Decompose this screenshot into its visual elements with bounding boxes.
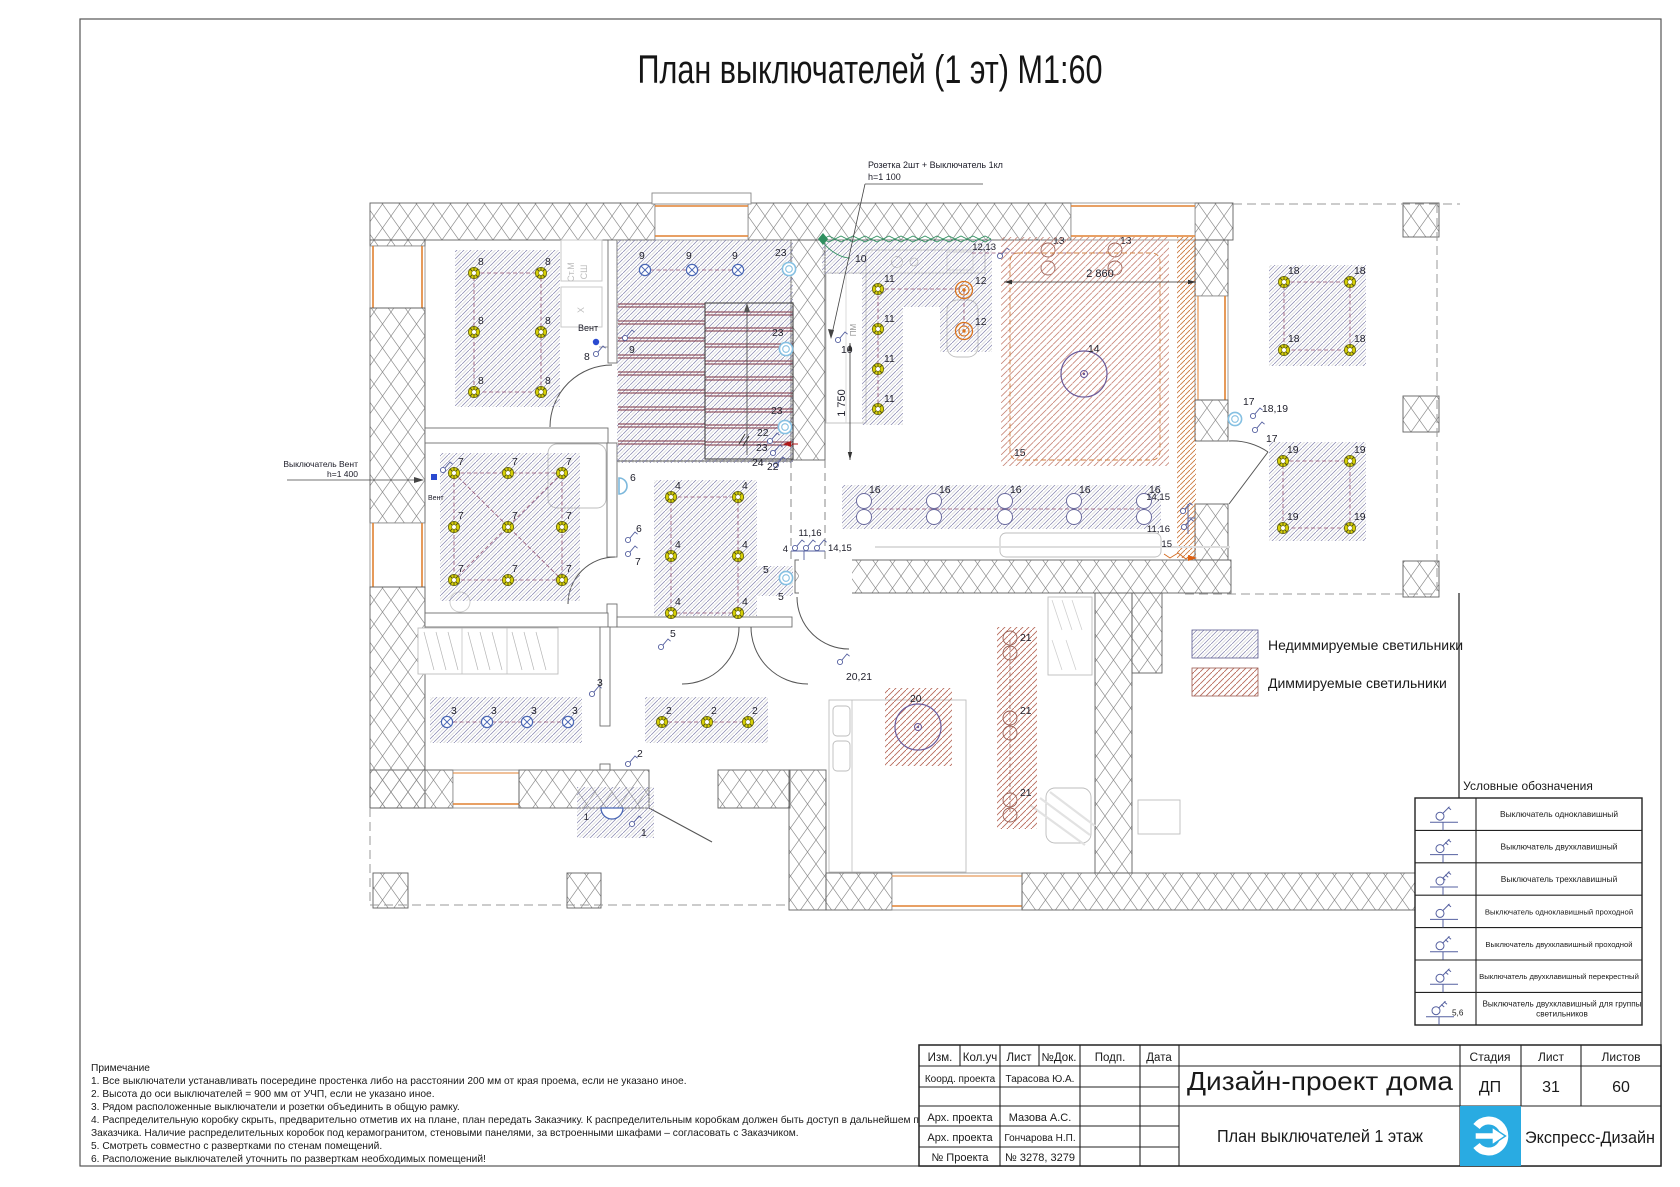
svg-text:Мазова А.С.: Мазова А.С. [1009, 1112, 1072, 1124]
svg-text:Вент: Вент [578, 323, 598, 333]
svg-text:7: 7 [458, 511, 464, 522]
svg-text:24: 24 [752, 458, 764, 469]
svg-text:Лист: Лист [1007, 1052, 1033, 1064]
svg-text:18,19: 18,19 [1262, 404, 1288, 415]
svg-text:14,15: 14,15 [1146, 492, 1170, 503]
svg-text:8: 8 [584, 352, 590, 363]
svg-text:9: 9 [732, 251, 738, 262]
svg-text:Диммируемые светильники: Диммируемые светильники [1268, 675, 1447, 691]
svg-text:11: 11 [884, 274, 895, 285]
svg-text:15: 15 [1014, 448, 1026, 459]
svg-text:9: 9 [629, 345, 635, 356]
svg-text:3: 3 [491, 706, 497, 717]
svg-text:20,21: 20,21 [846, 672, 872, 683]
svg-text:15: 15 [1161, 539, 1172, 550]
svg-text:17: 17 [1266, 434, 1278, 445]
svg-text:8: 8 [545, 257, 551, 268]
svg-text:2. Высота до оси выключателей: 2. Высота до оси выключателей = 900 мм о… [91, 1089, 435, 1100]
svg-text:7: 7 [458, 457, 464, 468]
svg-text:Х: Х [576, 307, 586, 313]
svg-text:10: 10 [855, 254, 867, 265]
svg-text:4: 4 [742, 540, 748, 551]
svg-text:Выключатель двухклавишный пере: Выключатель двухклавишный перекрестный [1479, 972, 1639, 981]
svg-text:8: 8 [478, 257, 484, 268]
svg-text:2: 2 [637, 749, 643, 760]
svg-text:12: 12 [975, 317, 987, 328]
svg-text:4: 4 [742, 597, 748, 608]
svg-text:Розетка 2шт + Выключатель 1кл: Розетка 2шт + Выключатель 1кл [868, 160, 1003, 170]
svg-text:Тарасова Ю.А.: Тарасова Ю.А. [1006, 1074, 1075, 1085]
svg-text:12: 12 [975, 276, 987, 287]
svg-text:4: 4 [783, 544, 788, 555]
svg-text:9: 9 [686, 251, 692, 262]
svg-text:3: 3 [451, 706, 457, 717]
svg-text:Гончарова Н.П.: Гончарова Н.П. [1004, 1133, 1075, 1144]
svg-text:31: 31 [1542, 1079, 1560, 1096]
svg-text:6: 6 [636, 524, 642, 535]
svg-text:4: 4 [675, 540, 681, 551]
svg-text:№ Проекта: № Проекта [931, 1152, 989, 1164]
svg-text:1: 1 [641, 828, 647, 839]
svg-text:1 750: 1 750 [836, 389, 848, 417]
svg-text:Вент: Вент [428, 495, 444, 502]
svg-text:2 860: 2 860 [1086, 268, 1114, 280]
svg-text:5. Смотреть совместно с развер: 5. Смотреть совместно с развертками по с… [91, 1141, 382, 1152]
svg-text:3: 3 [597, 678, 603, 689]
svg-text:7: 7 [512, 511, 518, 522]
svg-text:11: 11 [884, 394, 895, 405]
svg-text:7: 7 [566, 564, 572, 575]
svg-text:СШ: СШ [579, 265, 589, 280]
svg-text:Лист: Лист [1538, 1050, 1565, 1064]
svg-text:Выключатель одноклавишный: Выключатель одноклавишный [1500, 809, 1618, 819]
svg-text:19: 19 [1354, 512, 1366, 523]
svg-text:8: 8 [478, 376, 484, 387]
svg-text:Условные обозначения: Условные обозначения [1463, 779, 1593, 793]
svg-text:11,16: 11,16 [1147, 524, 1170, 535]
svg-text:Подп.: Подп. [1095, 1052, 1126, 1064]
svg-text:18: 18 [1354, 266, 1366, 277]
svg-text:Стадия: Стадия [1470, 1050, 1511, 1064]
svg-text:Коорд. проекта: Коорд. проекта [925, 1074, 996, 1085]
svg-text:Недиммируемые светильники: Недиммируемые светильники [1268, 637, 1463, 653]
svg-text:Листов: Листов [1602, 1050, 1641, 1064]
svg-text:5: 5 [763, 565, 769, 576]
svg-text:7: 7 [566, 511, 572, 522]
svg-text:18: 18 [1288, 334, 1300, 345]
svg-text:3: 3 [531, 706, 537, 717]
svg-text:Выключатель Вент: Выключатель Вент [283, 459, 358, 469]
svg-text:7: 7 [566, 457, 572, 468]
svg-text:1. Все выключатели устанавлива: 1. Все выключатели устанавливать посеред… [91, 1075, 687, 1087]
svg-text:светильников: светильников [1536, 1010, 1588, 1019]
svg-text:60: 60 [1612, 1079, 1630, 1096]
svg-text:3: 3 [572, 706, 578, 717]
svg-text:18: 18 [1288, 266, 1300, 277]
svg-text:14,15: 14,15 [828, 543, 852, 554]
svg-text:Ст.М: Ст.М [566, 262, 576, 282]
svg-text:23: 23 [772, 328, 784, 339]
svg-text:17: 17 [1243, 397, 1255, 408]
svg-text:16: 16 [1079, 485, 1091, 496]
svg-text:19: 19 [1287, 445, 1299, 456]
svg-text:8: 8 [545, 316, 551, 327]
svg-text:16: 16 [939, 485, 951, 496]
svg-text:16: 16 [869, 485, 881, 496]
svg-text:8: 8 [478, 316, 484, 327]
svg-text:Выключатель двухклавишный: Выключатель двухклавишный [1501, 842, 1618, 852]
svg-text:7: 7 [512, 457, 518, 468]
svg-text:Выключатель двухклавишный для: Выключатель двухклавишный для группы [1482, 1000, 1641, 1009]
svg-text:5: 5 [670, 629, 676, 640]
svg-text:3. Рядом расположенные выключа: 3. Рядом расположенные выключатели и роз… [91, 1101, 460, 1113]
svg-text:19: 19 [1287, 512, 1299, 523]
svg-text:2: 2 [711, 706, 717, 717]
svg-text:21: 21 [1020, 706, 1032, 717]
svg-text:22: 22 [757, 428, 769, 439]
svg-text:23: 23 [756, 443, 768, 454]
svg-text:План выключателей 1 этаж: План выключателей 1 этаж [1217, 1126, 1423, 1146]
svg-text:h=1 100: h=1 100 [868, 172, 901, 182]
svg-text:Заказчика. Наличие распределит: Заказчика. Наличие распределительных кор… [91, 1127, 799, 1139]
svg-text:11: 11 [884, 354, 895, 365]
svg-text:ПМ: ПМ [849, 323, 858, 336]
svg-text:5: 5 [778, 592, 784, 603]
svg-text:1: 1 [584, 812, 589, 823]
svg-text:ДП: ДП [1479, 1079, 1501, 1096]
svg-text:5,6: 5,6 [1452, 1009, 1464, 1018]
svg-text:16: 16 [1010, 485, 1022, 496]
svg-text:2: 2 [752, 706, 758, 717]
svg-text:Арх. проекта: Арх. проекта [927, 1112, 993, 1124]
svg-text:7: 7 [458, 564, 464, 575]
svg-text:11,16: 11,16 [798, 528, 821, 539]
svg-text:6. Расположение выключателей у: 6. Расположение выключателей уточнить по… [91, 1153, 486, 1165]
svg-text:23: 23 [775, 248, 787, 259]
svg-text:Примечание: Примечание [91, 1063, 150, 1074]
svg-text:Изм.: Изм. [928, 1052, 953, 1064]
svg-text:№ 3278, 3279: № 3278, 3279 [1005, 1152, 1075, 1164]
svg-text:4. Распределительную коробку с: 4. Распределительную коробку скрыть, пре… [91, 1114, 1000, 1126]
svg-text:6: 6 [630, 473, 636, 484]
svg-text:7: 7 [512, 564, 518, 575]
svg-text:Арх. проекта: Арх. проекта [927, 1132, 993, 1144]
svg-text:2: 2 [666, 706, 672, 717]
svg-text:22: 22 [767, 462, 779, 473]
svg-text:8: 8 [545, 376, 551, 387]
svg-text:18: 18 [1354, 334, 1366, 345]
svg-text:11: 11 [884, 314, 895, 325]
svg-text:4: 4 [742, 481, 748, 492]
svg-text:23: 23 [771, 406, 783, 417]
svg-text:Экспресс-Дизайн: Экспресс-Дизайн [1525, 1129, 1655, 1147]
svg-text:20: 20 [910, 694, 922, 705]
svg-text:21: 21 [1020, 788, 1032, 799]
svg-text:12,13: 12,13 [972, 242, 996, 253]
svg-text:4: 4 [675, 481, 681, 492]
svg-text:h=1 400: h=1 400 [327, 469, 358, 479]
svg-text:План выключателей (1 эт) М1:60: План выключателей (1 эт) М1:60 [638, 48, 1103, 92]
svg-text:9: 9 [639, 251, 645, 262]
svg-text:Дизайн-проект дома: Дизайн-проект дома [1187, 1066, 1454, 1096]
svg-text:Дата: Дата [1146, 1052, 1172, 1064]
svg-text:№Док.: №Док. [1042, 1052, 1077, 1064]
svg-text:Выключатель одноклавишный прох: Выключатель одноклавишный проходной [1485, 907, 1633, 916]
svg-text:19: 19 [1354, 445, 1366, 456]
svg-text:7: 7 [635, 557, 641, 568]
svg-text:Выключатель двухклавишный прох: Выключатель двухклавишный проходной [1485, 940, 1632, 949]
svg-text:21: 21 [1020, 633, 1032, 644]
svg-text:14: 14 [1088, 344, 1100, 355]
svg-text:4: 4 [675, 597, 681, 608]
svg-text:Кол.уч: Кол.уч [963, 1052, 998, 1064]
svg-text:Выключатель трехклавишный: Выключатель трехклавишный [1501, 874, 1618, 884]
